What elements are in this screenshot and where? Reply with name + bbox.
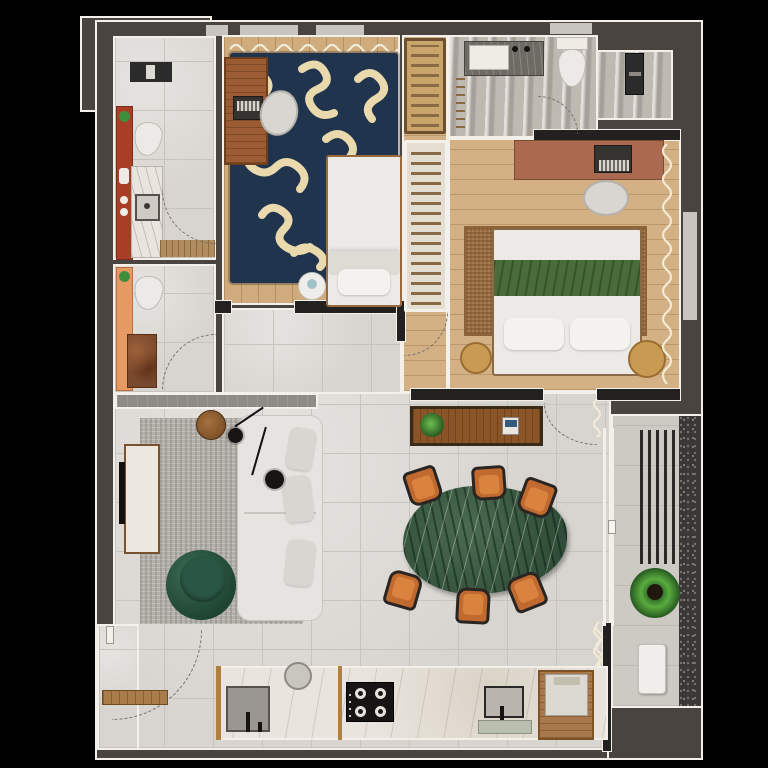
sofa-cushion	[284, 539, 317, 588]
sliding-door-handle	[608, 520, 616, 534]
cooktop-knobs	[349, 689, 351, 717]
vanity-knob	[120, 208, 128, 216]
round-wood-table	[196, 410, 226, 440]
round-side-table	[298, 272, 326, 300]
entry-bench-wood	[102, 690, 168, 705]
round-sink	[284, 662, 312, 690]
round-stool	[460, 342, 492, 374]
dining-chair	[471, 465, 507, 501]
appliance-white	[545, 674, 588, 716]
wardrobe-rack-white	[404, 140, 448, 312]
burner	[355, 706, 366, 717]
laptop-keyboard	[599, 160, 629, 171]
double-bed	[492, 228, 642, 376]
wall-bedroom2-bottom-left	[410, 388, 544, 401]
hanger-slats	[411, 147, 441, 305]
sofa-cushion	[281, 474, 314, 523]
pouf-inner	[180, 556, 226, 602]
exterior-block-bottom-right	[607, 706, 703, 760]
desk-bedroom2	[514, 140, 664, 180]
window-slit	[550, 23, 592, 34]
pillow	[504, 318, 564, 350]
curtain-window-bedroom1	[228, 40, 400, 52]
plant-icon	[420, 413, 444, 437]
tall-cabinet	[625, 53, 644, 95]
vanity-items	[119, 168, 129, 184]
pillow	[338, 269, 390, 295]
towel-ladder	[456, 78, 465, 128]
single-bed	[326, 155, 402, 307]
sofa-cushion	[285, 426, 317, 472]
wall-stub-bath-corner	[214, 300, 232, 314]
laptop-keyboard	[237, 101, 260, 111]
pendant-lamp	[228, 428, 243, 443]
hall-floor	[222, 308, 402, 396]
faucet-icon	[512, 46, 518, 52]
balcony-granite-strip	[679, 416, 701, 706]
burner	[375, 688, 386, 699]
floor-plan	[0, 0, 768, 768]
louver-screen	[640, 430, 678, 564]
faucet-icon	[258, 722, 262, 732]
pouf-green	[166, 550, 236, 620]
counter-wood-edge	[338, 666, 342, 740]
cooktop	[346, 682, 394, 722]
hanger-slats	[411, 45, 439, 127]
burner	[355, 688, 366, 699]
half-wall-ledge	[115, 393, 318, 409]
washer-door	[146, 65, 155, 79]
books	[502, 417, 519, 435]
faucet-icon	[246, 712, 250, 732]
counter-wood-edge	[216, 666, 221, 740]
blanket-green	[494, 260, 640, 296]
dish-tray	[478, 720, 532, 734]
laptop	[233, 96, 263, 120]
plant-pot	[647, 584, 663, 600]
plant-icon	[119, 271, 130, 282]
balcony-plant	[630, 568, 680, 618]
sliding-door-track	[603, 428, 606, 626]
cabinet-shelf-line	[629, 72, 641, 76]
shower-stone	[127, 334, 157, 388]
laptop	[594, 145, 632, 173]
faucet-icon	[524, 46, 530, 52]
appliance-panel	[554, 677, 580, 685]
plant-icon	[119, 111, 130, 122]
entry-door-leaf	[106, 626, 114, 644]
book-cover	[505, 420, 517, 427]
dining-chair	[455, 587, 491, 625]
window-slit-right	[683, 212, 697, 320]
curtain-kitchen-end	[592, 620, 608, 672]
faucet-icon	[144, 203, 150, 209]
pillow	[570, 318, 630, 350]
curtain-window-bedroom2	[658, 142, 674, 390]
table-decor	[307, 279, 317, 289]
tv	[119, 462, 125, 524]
wardrobe-rack-wood	[404, 38, 446, 134]
pendant-lamp	[265, 470, 284, 489]
vanity-knob	[120, 196, 128, 204]
sofa	[238, 416, 322, 620]
kitchen-sink	[484, 686, 524, 718]
burner	[375, 706, 386, 717]
sink	[469, 45, 509, 70]
tv-console	[124, 444, 160, 554]
washer	[130, 62, 172, 82]
curtain-balcony-top	[590, 397, 606, 439]
balcony-bench	[638, 644, 666, 694]
desk-chair-bedroom2	[583, 180, 629, 216]
